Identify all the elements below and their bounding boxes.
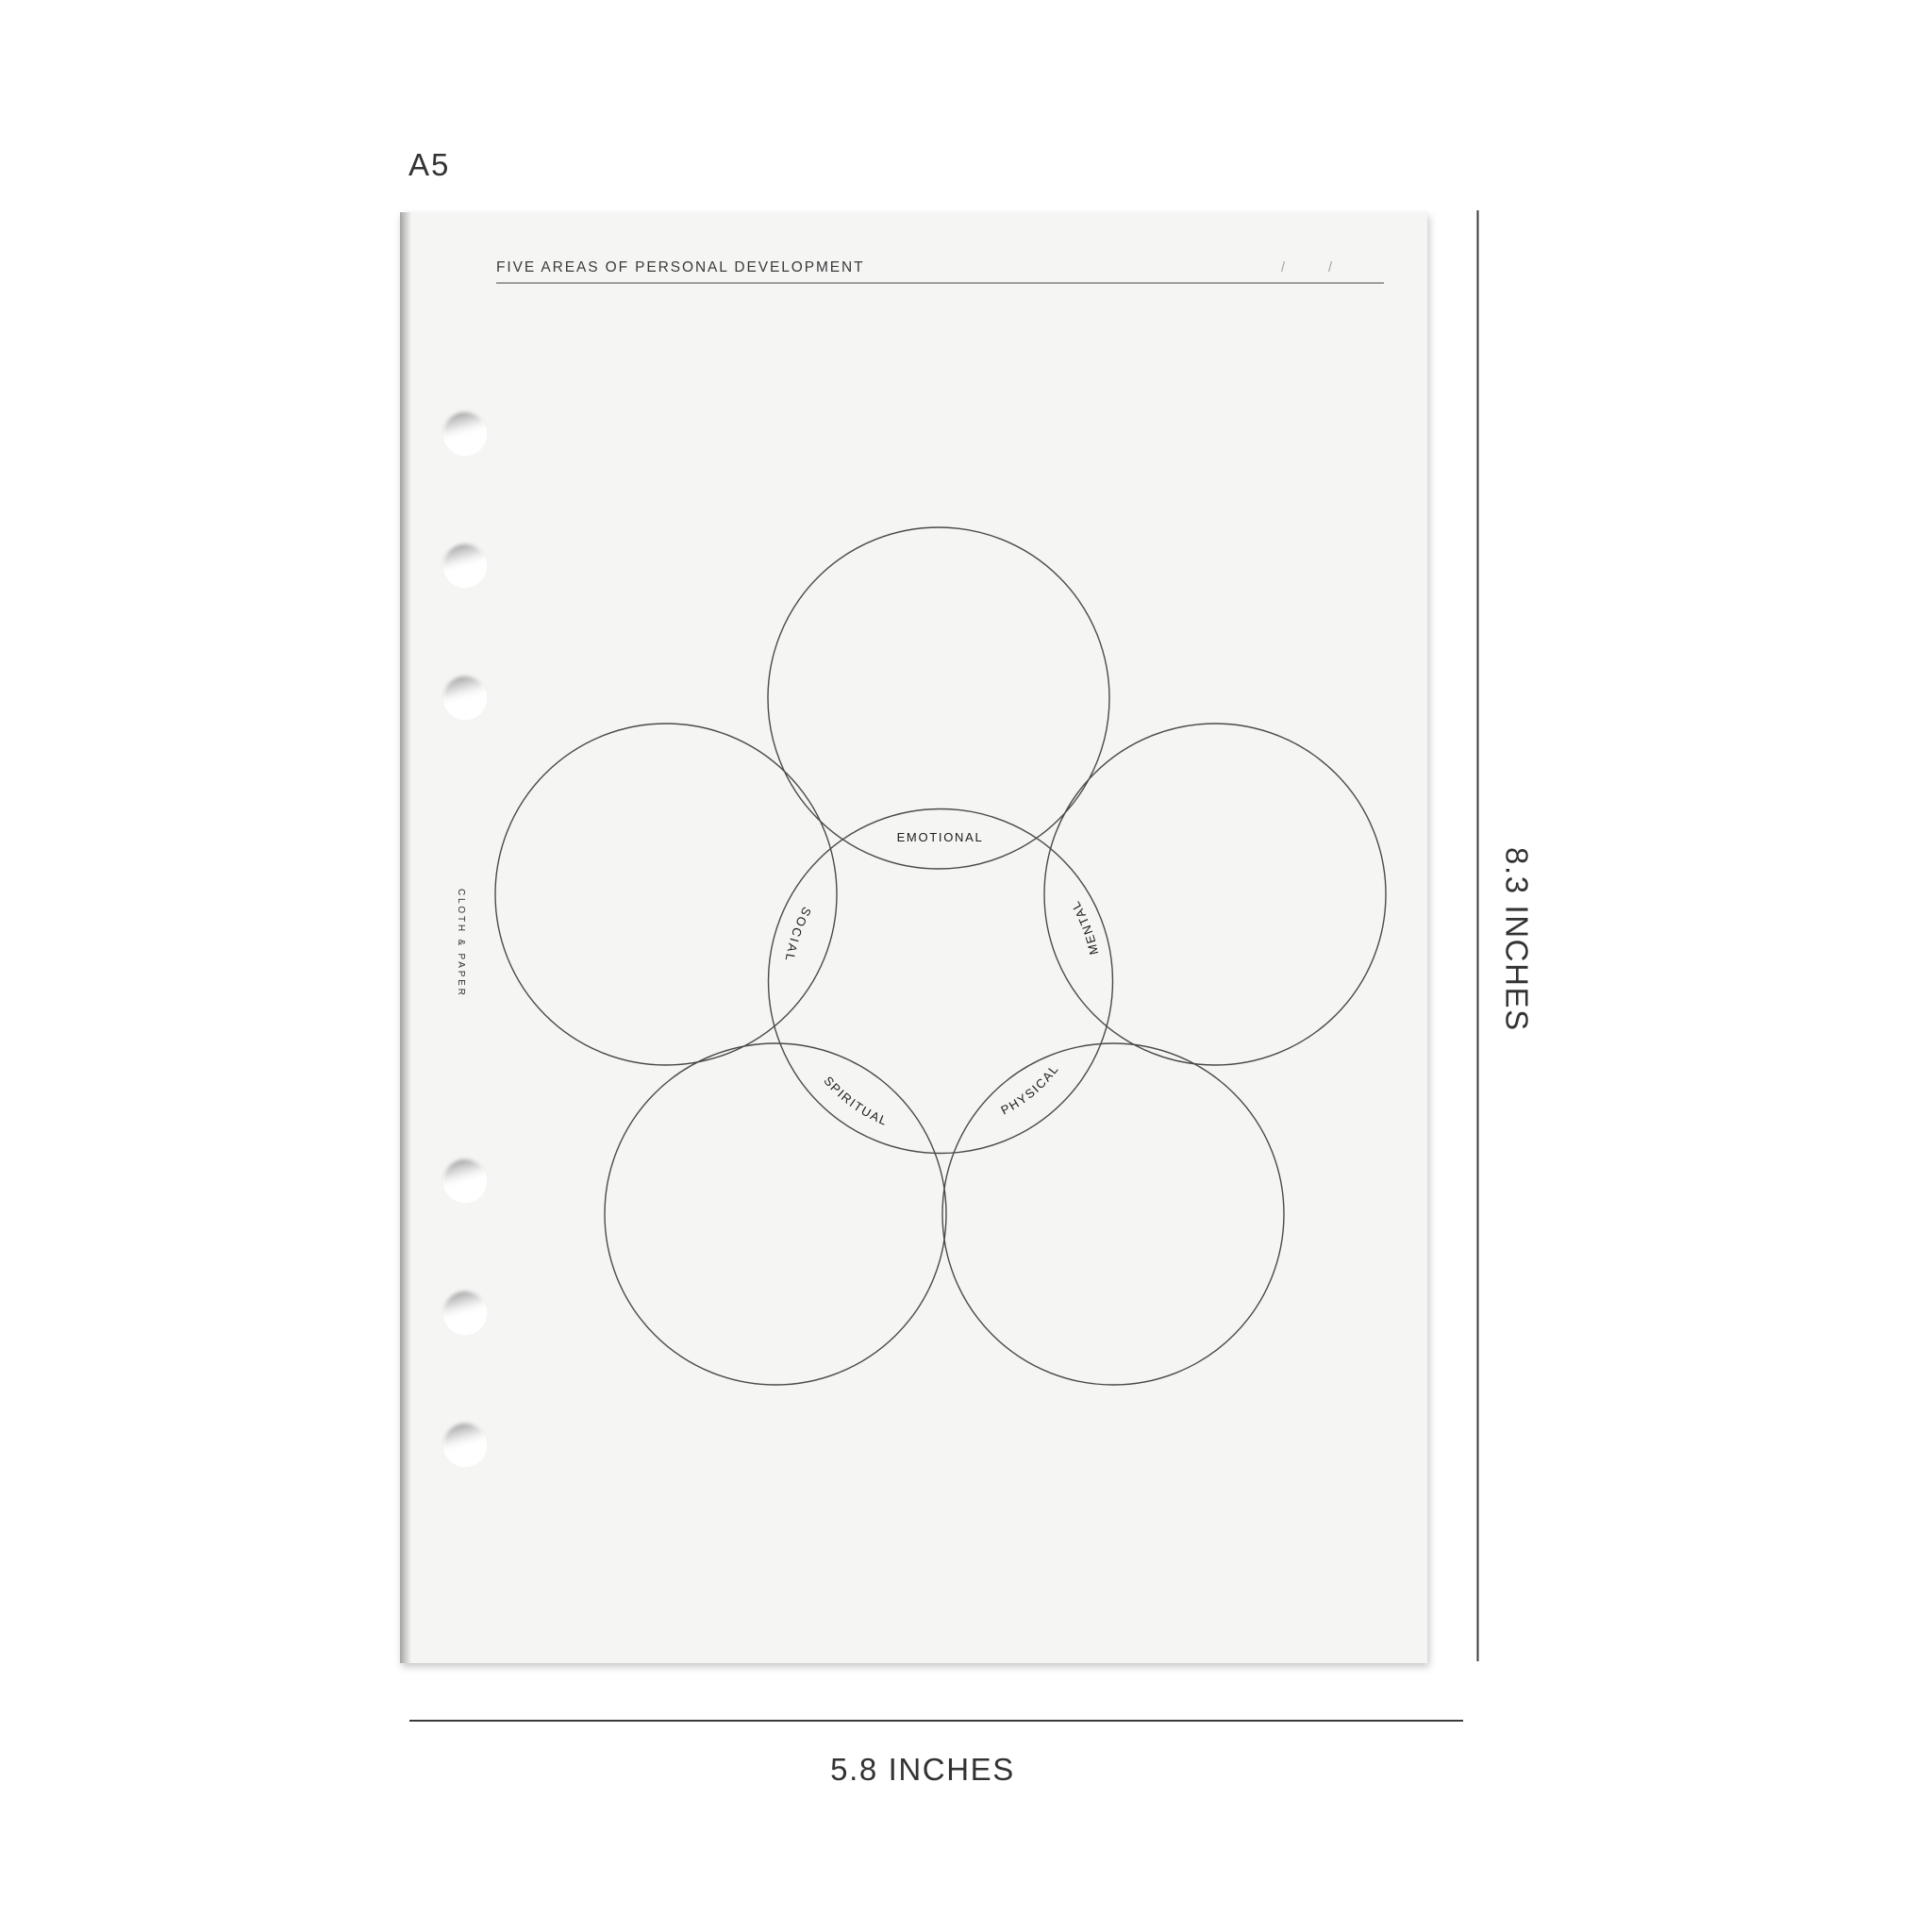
svg-text:8.3 INCHES: 8.3 INCHES	[1500, 847, 1535, 1032]
svg-text:SPIRITUAL: SPIRITUAL	[821, 1074, 890, 1128]
svg-text:CLOTH & PAPER: CLOTH & PAPER	[456, 889, 466, 998]
svg-text:A5: A5	[408, 147, 450, 182]
svg-text:EMOTIONAL: EMOTIONAL	[897, 830, 984, 844]
svg-text:FIVE AREAS OF PERSONAL DEVELOP: FIVE AREAS OF PERSONAL DEVELOPMENT	[496, 259, 864, 275]
svg-text:PHYSICAL: PHYSICAL	[998, 1061, 1061, 1118]
svg-text:/: /	[1328, 260, 1333, 275]
svg-text:SOCIAL: SOCIAL	[782, 905, 814, 964]
svg-text:/: /	[1281, 260, 1286, 275]
svg-text:5.8 INCHES: 5.8 INCHES	[830, 1752, 1015, 1787]
